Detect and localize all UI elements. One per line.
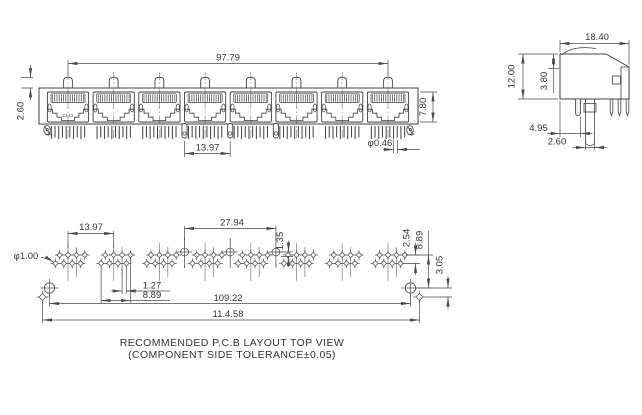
dim-front-postpitch-label: 13.97	[196, 143, 220, 154]
dim-pcb-postoffset-label: 1.35	[275, 232, 286, 251]
dim-pcb-holedrop-label: 3.05	[435, 256, 446, 275]
dim-front-portheight-label: 7.80	[418, 98, 429, 117]
dim-pcb-holedia	[41, 258, 54, 263]
dim-side-depth-label: 18.40	[585, 32, 609, 43]
dim-pcb-rowpitch-label: 2.54	[402, 229, 413, 248]
technical-drawing-canvas: CLCI 97.79 2.60 7.80 13.97	[0, 0, 642, 415]
connector-drawing: CLCI 97.79 2.60 7.80 13.97	[0, 0, 642, 415]
side-view: 18.40 12.00 3.80 4.95 2.60	[507, 32, 630, 150]
dim-side-pegpos-label: 4.95	[529, 123, 548, 134]
dim-pcb-edgedrop-label: 8.89	[415, 231, 426, 250]
dim-front-span-label: 97.79	[216, 53, 240, 64]
pcb-layout: φ1.00 13.97 27.94 1.35 2.54	[14, 218, 452, 362]
caption-line-2: (COMPONENT SIDE TOLERANCE±0.05)	[128, 349, 336, 361]
dim-side-pegdia	[573, 144, 608, 151]
caption-line-1: RECOMMENDED P.C.B LAYOUT TOP VIEW	[120, 337, 344, 349]
port-marking: CLCI	[62, 113, 73, 118]
dim-side-height-label: 12.00	[507, 65, 518, 89]
dim-side-height	[518, 54, 558, 99]
dim-pcb-mountspan-label: 109.22	[213, 293, 242, 304]
dim-pcb-grouppitch	[68, 231, 114, 248]
dim-front-pindia-label: φ0.46	[368, 138, 393, 149]
dim-side-pegdia-label: 2.60	[548, 137, 567, 148]
dim-pcb-holedrop	[417, 276, 453, 309]
dim-front-latch-label: 2.60	[16, 102, 27, 121]
dim-pcb-holedia-label: φ1.00	[14, 251, 39, 262]
front-view: CLCI 97.79 2.60 7.80 13.97	[16, 53, 438, 158]
dim-pcb-postpitch-label: 27.94	[220, 218, 244, 229]
dim-front-latch	[21, 65, 33, 100]
dim-side-flange-label: 3.80	[539, 72, 550, 91]
dim-pcb-grouppitch-label: 13.97	[79, 222, 103, 233]
dim-pcb-totalspan-label: 11.4.58	[213, 309, 244, 320]
dim-pcb-groupspan-label: 8.89	[143, 290, 162, 301]
